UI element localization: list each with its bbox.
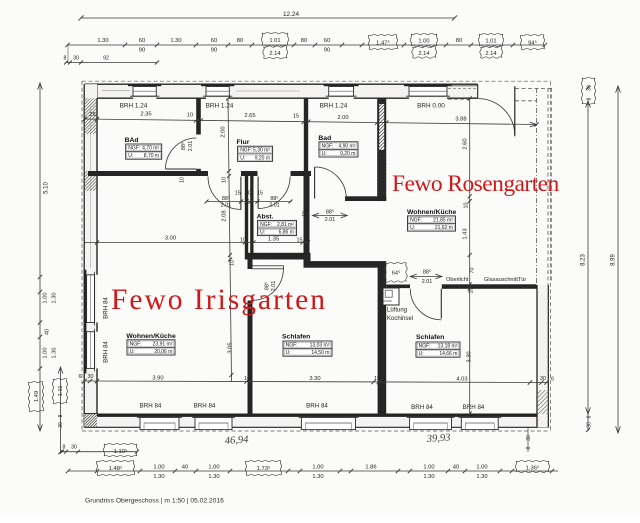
svg-text:U:: U: xyxy=(260,230,265,236)
svg-text:2.14: 2.14 xyxy=(485,51,497,57)
svg-text:NGF:: NGF: xyxy=(128,146,140,152)
svg-text:3.30: 3.30 xyxy=(467,351,473,362)
svg-text:U:: U: xyxy=(128,153,133,159)
svg-text:88⁵: 88⁵ xyxy=(181,142,187,150)
svg-text:1.30: 1.30 xyxy=(153,474,164,480)
svg-text:92: 92 xyxy=(103,56,109,62)
svg-text:1.01: 1.01 xyxy=(485,39,496,45)
svg-text:88⁵: 88⁵ xyxy=(326,210,334,216)
svg-text:3.90: 3.90 xyxy=(152,376,163,382)
svg-text:60: 60 xyxy=(324,38,330,44)
svg-text:1.73⁵: 1.73⁵ xyxy=(257,465,271,472)
svg-text:15: 15 xyxy=(374,376,380,382)
svg-text:1.30: 1.30 xyxy=(170,38,181,44)
svg-text:4,90 m²: 4,90 m² xyxy=(338,143,355,149)
svg-text:NGF:: NGF: xyxy=(240,148,252,154)
svg-text:1.30: 1.30 xyxy=(312,474,323,480)
svg-text:U:: U: xyxy=(130,349,135,355)
svg-text:6: 6 xyxy=(79,374,82,380)
svg-text:U:: U: xyxy=(410,225,415,231)
svg-text:6,86 m: 6,86 m xyxy=(279,230,294,236)
svg-text:40: 40 xyxy=(453,465,459,471)
svg-text:13,03 m²: 13,03 m² xyxy=(310,343,330,349)
svg-text:1.30: 1.30 xyxy=(476,474,487,480)
svg-text:Schlafen: Schlafen xyxy=(282,334,310,341)
svg-text:94⁵: 94⁵ xyxy=(528,40,537,47)
svg-text:BRH 84: BRH 84 xyxy=(411,404,433,411)
svg-text:2.01: 2.01 xyxy=(188,141,194,152)
svg-text:Oberlicht: Oberlicht xyxy=(446,277,469,283)
svg-text:BRH 84: BRH 84 xyxy=(463,404,485,411)
svg-text:21,85 m²: 21,85 m² xyxy=(433,217,453,223)
svg-text:15: 15 xyxy=(297,238,303,244)
svg-text:NGF:: NGF: xyxy=(322,143,334,149)
svg-text:Grundriss Obergeschoss | m 1:5: Grundriss Obergeschoss | m 1:50 | 05.02.… xyxy=(85,498,224,505)
svg-text:1.00: 1.00 xyxy=(43,293,49,304)
svg-text:90: 90 xyxy=(211,48,217,54)
svg-text:1.00: 1.00 xyxy=(312,465,323,471)
svg-text:1.36⁵: 1.36⁵ xyxy=(526,465,540,472)
svg-text:9,20 m: 9,20 m xyxy=(340,151,355,157)
svg-text:88⁵: 88⁵ xyxy=(270,196,278,202)
svg-text:15: 15 xyxy=(293,114,299,120)
svg-text:2.65: 2.65 xyxy=(244,113,255,119)
svg-text:5.10: 5.10 xyxy=(44,182,50,194)
svg-text:40: 40 xyxy=(45,329,51,335)
svg-text:1.00: 1.00 xyxy=(476,465,487,471)
svg-text:U:: U: xyxy=(286,350,291,356)
svg-text:8: 8 xyxy=(526,446,532,449)
svg-text:10: 10 xyxy=(464,203,470,209)
svg-text:39,93: 39,93 xyxy=(425,432,450,445)
svg-text:10: 10 xyxy=(230,260,236,266)
svg-text:90: 90 xyxy=(324,48,330,54)
svg-text:15: 15 xyxy=(257,191,263,197)
svg-text:1.10⁵: 1.10⁵ xyxy=(114,448,128,455)
svg-text:Wohnen/Küche: Wohnen/Küche xyxy=(126,333,176,340)
svg-text:1.86: 1.86 xyxy=(365,465,376,471)
svg-text:3.88: 3.88 xyxy=(455,117,466,123)
svg-text:88⁵: 88⁵ xyxy=(423,270,431,276)
svg-text:2.01: 2.01 xyxy=(422,279,433,285)
svg-text:21,62 m: 21,62 m xyxy=(435,225,453,231)
svg-text:30: 30 xyxy=(587,422,593,428)
svg-text:10: 10 xyxy=(469,288,475,294)
svg-text:8: 8 xyxy=(587,97,593,100)
svg-text:BRH 0.00: BRH 0.00 xyxy=(417,103,445,110)
svg-text:2.14: 2.14 xyxy=(269,51,281,57)
svg-text:Kochinsel: Kochinsel xyxy=(387,316,413,322)
svg-text:NGF:: NGF: xyxy=(260,222,272,228)
svg-text:Fewo Irisgarten: Fewo Irisgarten xyxy=(111,284,327,316)
svg-text:U:: U: xyxy=(419,351,424,357)
svg-text:1.00: 1.00 xyxy=(418,39,429,45)
svg-text:30: 30 xyxy=(73,56,79,62)
svg-text:NGF:: NGF: xyxy=(419,344,431,350)
svg-text:8: 8 xyxy=(58,414,64,417)
svg-text:8.99: 8.99 xyxy=(611,254,617,266)
svg-text:10: 10 xyxy=(222,177,228,183)
svg-text:2.01: 2.01 xyxy=(269,203,280,209)
svg-text:3.00: 3.00 xyxy=(165,236,176,242)
svg-text:2.60: 2.60 xyxy=(462,138,468,149)
svg-text:30: 30 xyxy=(71,445,77,451)
svg-text:3.30: 3.30 xyxy=(309,376,320,382)
svg-text:up: up xyxy=(262,254,268,259)
svg-text:10: 10 xyxy=(240,237,246,243)
svg-text:1.00: 1.00 xyxy=(423,465,434,471)
svg-text:Abst.: Abst. xyxy=(257,214,274,221)
svg-text:1.11: 1.11 xyxy=(58,386,64,397)
svg-text:2.35: 2.35 xyxy=(140,112,151,118)
svg-text:Wohnen/Küche: Wohnen/Küche xyxy=(407,209,457,216)
svg-text:1.01: 1.01 xyxy=(269,38,280,44)
svg-text:90: 90 xyxy=(139,48,145,54)
svg-text:1.47⁵: 1.47⁵ xyxy=(376,40,390,47)
svg-text:64⁵: 64⁵ xyxy=(392,270,401,277)
svg-text:14,66 m: 14,66 m xyxy=(439,351,457,357)
svg-text:BRH 84: BRH 84 xyxy=(103,341,110,363)
svg-text:1.30: 1.30 xyxy=(423,474,434,480)
svg-text:13,18 m²: 13,18 m² xyxy=(438,344,458,350)
svg-text:8: 8 xyxy=(64,56,67,62)
svg-text:1.35: 1.35 xyxy=(268,237,279,243)
svg-text:1.43: 1.43 xyxy=(462,228,468,239)
svg-text:70: 70 xyxy=(470,268,476,274)
svg-text:U:: U: xyxy=(322,151,327,157)
svg-text:U:: U: xyxy=(240,155,245,161)
svg-text:Fewo Rosengarten: Fewo Rosengarten xyxy=(392,171,560,197)
svg-text:4.03: 4.03 xyxy=(456,377,467,383)
svg-text:30: 30 xyxy=(540,376,546,382)
svg-text:BRH 1.24: BRH 1.24 xyxy=(320,103,348,110)
svg-text:60: 60 xyxy=(139,38,145,44)
svg-text:1.48⁵: 1.48⁵ xyxy=(109,465,123,472)
svg-text:30: 30 xyxy=(58,422,64,428)
svg-text:NGF:: NGF: xyxy=(410,217,422,223)
svg-text:Lüftung: Lüftung xyxy=(387,308,407,314)
svg-text:10: 10 xyxy=(244,376,250,382)
svg-text:6: 6 xyxy=(587,415,593,418)
svg-text:40: 40 xyxy=(182,465,188,471)
svg-text:10: 10 xyxy=(302,211,308,217)
svg-text:2.01: 2.01 xyxy=(325,217,336,223)
svg-text:GlasauschnittTür: GlasauschnittTür xyxy=(484,277,526,283)
svg-text:20,06 m: 20,06 m xyxy=(154,349,172,355)
svg-text:1.00: 1.00 xyxy=(208,465,219,471)
svg-text:2.08: 2.08 xyxy=(222,210,228,221)
svg-text:15: 15 xyxy=(235,191,241,197)
svg-text:1.30: 1.30 xyxy=(208,474,219,480)
svg-text:30: 30 xyxy=(526,435,532,441)
svg-text:2,81 m²: 2,81 m² xyxy=(277,222,294,228)
svg-text:BAd: BAd xyxy=(125,137,139,144)
svg-text:12.24: 12.24 xyxy=(283,11,299,18)
svg-text:Bad: Bad xyxy=(318,135,331,142)
svg-text:NGF:: NGF: xyxy=(286,343,298,349)
svg-text:25: 25 xyxy=(89,112,95,118)
svg-text:8,70 m: 8,70 m xyxy=(144,153,159,159)
svg-text:1.30: 1.30 xyxy=(97,38,108,44)
svg-text:NGF:: NGF: xyxy=(130,341,142,347)
svg-text:60: 60 xyxy=(211,38,217,44)
svg-text:BRH 1.24: BRH 1.24 xyxy=(206,103,234,110)
svg-text:2.00: 2.00 xyxy=(337,115,348,121)
svg-text:BRH 84: BRH 84 xyxy=(194,403,216,410)
svg-text:6: 6 xyxy=(551,377,554,383)
svg-text:BRH 84: BRH 84 xyxy=(140,403,162,410)
svg-text:Flur: Flur xyxy=(237,139,250,146)
svg-text:9,20 m: 9,20 m xyxy=(255,155,270,161)
svg-text:3.05: 3.05 xyxy=(228,342,234,353)
svg-text:46,94: 46,94 xyxy=(224,434,249,447)
svg-text:BRH 1.24: BRH 1.24 xyxy=(120,103,148,110)
svg-text:4,70 m²: 4,70 m² xyxy=(142,146,159,152)
svg-text:10: 10 xyxy=(180,177,186,183)
svg-text:BRH 84: BRH 84 xyxy=(103,297,110,319)
svg-text:1.49: 1.49 xyxy=(34,391,40,402)
svg-text:2.14: 2.14 xyxy=(418,51,430,57)
svg-text:30: 30 xyxy=(88,374,94,380)
svg-text:10: 10 xyxy=(245,191,251,197)
svg-text:23,91 m²: 23,91 m² xyxy=(153,341,173,347)
svg-text:BRH 84: BRH 84 xyxy=(306,403,328,410)
svg-text:30: 30 xyxy=(587,85,593,91)
svg-text:80: 80 xyxy=(456,38,462,44)
svg-text:8.23: 8.23 xyxy=(581,254,587,266)
svg-text:1.00: 1.00 xyxy=(153,465,164,471)
svg-text:1.30: 1.30 xyxy=(52,293,58,304)
svg-text:1.00: 1.00 xyxy=(43,348,49,359)
svg-text:2.00: 2.00 xyxy=(221,126,227,137)
svg-text:5,30 m²: 5,30 m² xyxy=(253,148,270,154)
svg-text:80: 80 xyxy=(301,38,307,44)
svg-text:10: 10 xyxy=(187,113,193,119)
svg-text:8: 8 xyxy=(63,445,66,451)
svg-text:Schlafen: Schlafen xyxy=(416,334,444,341)
svg-text:1.30: 1.30 xyxy=(52,348,58,359)
svg-text:14,50 m: 14,50 m xyxy=(311,350,329,356)
svg-text:80: 80 xyxy=(237,38,243,44)
